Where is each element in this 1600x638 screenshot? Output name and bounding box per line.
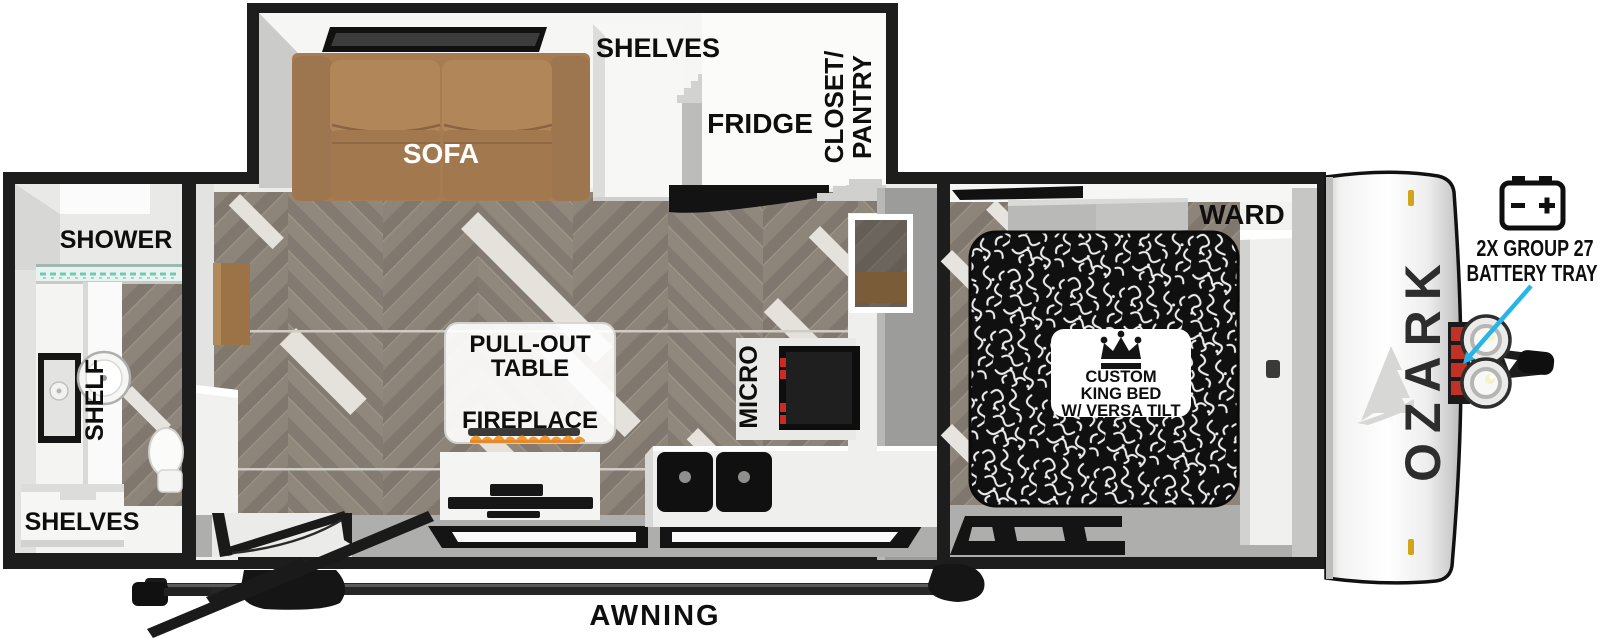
svg-text:MICRO: MICRO xyxy=(735,345,763,428)
svg-text:CUSTOM: CUSTOM xyxy=(1085,368,1156,386)
svg-text:BATTERY TRAY: BATTERY TRAY xyxy=(1467,262,1598,287)
svg-text:PULL-OUT: PULL-OUT xyxy=(469,331,591,358)
svg-text:CLOSET/: CLOSET/ xyxy=(819,51,849,164)
svg-text:FRIDGE: FRIDGE xyxy=(707,108,813,139)
svg-text:AWNING: AWNING xyxy=(589,600,720,632)
svg-text:PANTRY: PANTRY xyxy=(847,55,877,159)
svg-text:SHELVES: SHELVES xyxy=(596,33,720,63)
svg-text:KING BED: KING BED xyxy=(1081,385,1162,403)
svg-text:SOFA: SOFA xyxy=(403,138,479,169)
svg-text:2X GROUP 27: 2X GROUP 27 xyxy=(1476,236,1593,262)
svg-text:WARD: WARD xyxy=(1199,199,1285,230)
svg-text:OZARK: OZARK xyxy=(1395,254,1451,482)
svg-text:SHELVES: SHELVES xyxy=(25,508,140,536)
svg-text:W/ VERSA TILT: W/ VERSA TILT xyxy=(1061,402,1180,420)
svg-text:SHOWER: SHOWER xyxy=(60,226,173,254)
svg-text:TABLE: TABLE xyxy=(491,355,569,382)
svg-text:SHELF: SHELF xyxy=(81,359,109,441)
